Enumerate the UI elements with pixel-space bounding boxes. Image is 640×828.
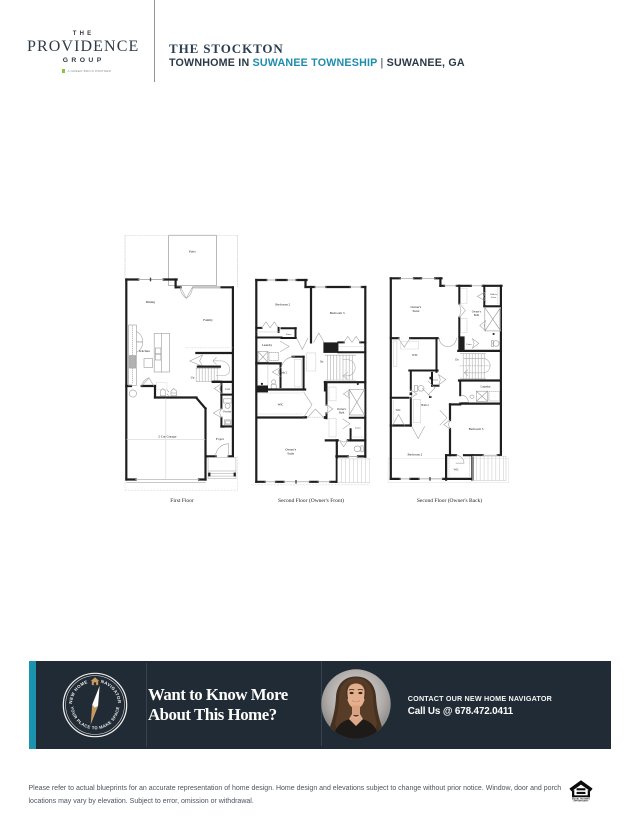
svg-text:Laundry: Laundry — [262, 343, 273, 347]
svg-text:Laundry: Laundry — [481, 384, 492, 388]
svg-text:Kitchen: Kitchen — [139, 349, 150, 353]
svg-text:Dining: Dining — [146, 300, 156, 304]
svg-text:Patio: Patio — [189, 250, 196, 254]
svg-text:Bedroom 2: Bedroom 2 — [275, 302, 290, 306]
svg-text:2 Car Garage: 2 Car Garage — [158, 435, 177, 439]
svg-text:Family: Family — [203, 318, 213, 322]
svg-text:Bath 2: Bath 2 — [421, 404, 429, 407]
svg-text:Linen: Linen — [491, 297, 497, 299]
svg-text:Bath: Bath — [339, 411, 345, 414]
svg-text:Linen: Linen — [466, 344, 472, 346]
svg-text:Dn: Dn — [320, 360, 324, 363]
svg-text:Bedroom 3: Bedroom 3 — [469, 427, 484, 431]
svg-text:Coat: Coat — [225, 388, 230, 391]
svg-text:Dn: Dn — [455, 358, 459, 361]
svg-text:Suite: Suite — [287, 452, 294, 456]
svg-text:Foyer: Foyer — [216, 437, 225, 441]
svg-text:Bath: Bath — [474, 314, 480, 317]
svg-text:WIC: WIC — [278, 403, 284, 407]
svg-text:Powder: Powder — [223, 411, 231, 414]
svg-text:WIC: WIC — [412, 353, 418, 357]
svg-text:Linen: Linen — [286, 333, 292, 336]
svg-text:Bath 2: Bath 2 — [280, 372, 288, 375]
svg-text:OPPORTUNITY: OPPORTUNITY — [573, 800, 589, 802]
svg-text:WIC: WIC — [396, 409, 401, 412]
svg-text:Linen: Linen — [355, 427, 361, 430]
svg-text:Suite: Suite — [413, 309, 420, 313]
svg-text:Bedroom 2: Bedroom 2 — [408, 453, 423, 457]
svg-text:Linen: Linen — [433, 379, 438, 381]
svg-text:WIC: WIC — [454, 469, 459, 472]
svg-text:NAVIGATOR: NAVIGATOR — [100, 679, 122, 705]
svg-text:Walk-in: Walk-in — [490, 294, 498, 296]
svg-text:NEW HOME: NEW HOME — [68, 679, 88, 704]
svg-text:Bedroom 3: Bedroom 3 — [330, 311, 345, 315]
svg-text:Up: Up — [191, 375, 195, 379]
